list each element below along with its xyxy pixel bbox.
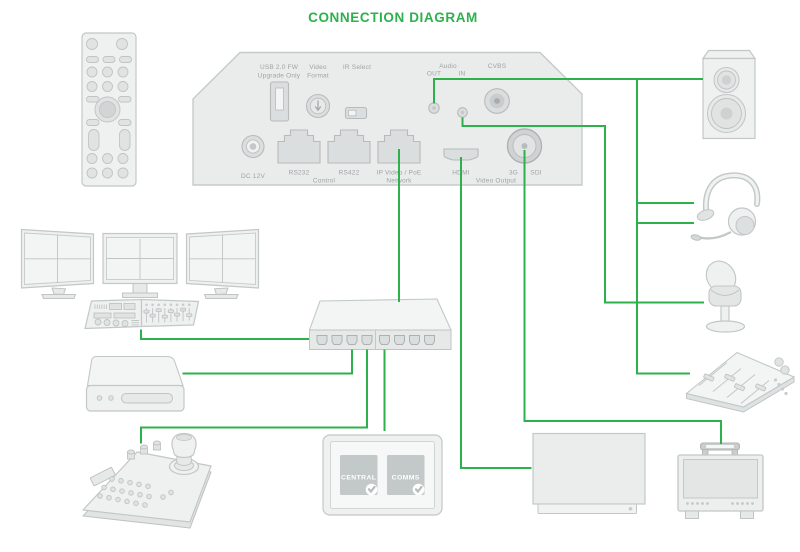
sdi-port-pin bbox=[522, 143, 528, 149]
tv-display bbox=[533, 434, 645, 514]
joystick-controller bbox=[83, 434, 211, 529]
sdi-label: SDI bbox=[530, 170, 541, 177]
monitor-wall bbox=[22, 230, 259, 329]
monitor-right bbox=[187, 230, 259, 299]
monitor-center bbox=[103, 234, 177, 298]
headband-pad bbox=[696, 208, 715, 223]
sdi-label-3g: 3G bbox=[509, 170, 518, 177]
cvbs-jack-pin bbox=[494, 98, 500, 104]
mic-base bbox=[707, 321, 745, 332]
tile-central-label: CENTRAL bbox=[341, 475, 376, 482]
ir-select-label: IR Select bbox=[343, 64, 371, 71]
ir-select-knob bbox=[349, 110, 357, 116]
video-output-label: Video Output bbox=[476, 178, 516, 185]
control-label: Control bbox=[313, 178, 336, 185]
cvbs-label: CVBS bbox=[488, 63, 507, 70]
boom-mic-tip bbox=[691, 234, 702, 241]
wire-hdmi-to-tv bbox=[461, 157, 532, 468]
mixer-knob bbox=[775, 358, 783, 366]
converter-box bbox=[87, 357, 185, 412]
headset bbox=[691, 175, 758, 241]
network-switch bbox=[310, 299, 452, 350]
mic-boom bbox=[700, 232, 731, 238]
page-title: CONNECTION DIAGRAM bbox=[308, 10, 478, 25]
audio-mixer bbox=[687, 353, 795, 413]
led-icon bbox=[97, 396, 102, 401]
mixer-knob bbox=[781, 366, 789, 374]
tile-comms-label: COMMS bbox=[392, 475, 420, 482]
microphone bbox=[701, 256, 745, 332]
monitor-left bbox=[22, 230, 94, 299]
wire-switch-to-converter-box bbox=[183, 350, 353, 374]
audio-out-jack-hole bbox=[432, 106, 436, 110]
audio-label: Audio bbox=[439, 63, 457, 70]
wire-control-surface-to-switch bbox=[141, 330, 309, 340]
audio-in-label: IN bbox=[459, 71, 466, 78]
remote-control bbox=[82, 33, 136, 186]
connection-diagram: CONNECTION DIAGRAM USB 2.0 FW Upgrade On… bbox=[0, 0, 800, 552]
usb-label-2: Upgrade Only bbox=[258, 73, 301, 80]
rs232-label: RS232 bbox=[289, 170, 310, 177]
usb-label: USB 2.0 FW bbox=[260, 64, 299, 71]
joystick bbox=[170, 434, 199, 475]
speaker bbox=[703, 51, 755, 139]
wire-audio-branch-to-mixer bbox=[637, 79, 690, 374]
mic-yoke bbox=[709, 286, 741, 306]
control-surface bbox=[85, 300, 199, 329]
dc-jack-pin bbox=[250, 143, 257, 150]
field-monitor bbox=[678, 443, 763, 519]
audio-in-jack-hole bbox=[461, 111, 464, 114]
touch-panel: CENTRAL COMMS bbox=[323, 435, 442, 515]
video-format-label: Video bbox=[309, 64, 327, 71]
rs422-label: RS422 bbox=[339, 170, 360, 177]
led-icon bbox=[109, 396, 114, 401]
audio-out-label: OUT bbox=[427, 71, 441, 78]
dc-label: DC 12V bbox=[241, 173, 265, 180]
video-format-label-2: Format bbox=[307, 73, 329, 80]
usb-tongue bbox=[276, 88, 284, 110]
power-led-icon bbox=[629, 507, 633, 511]
